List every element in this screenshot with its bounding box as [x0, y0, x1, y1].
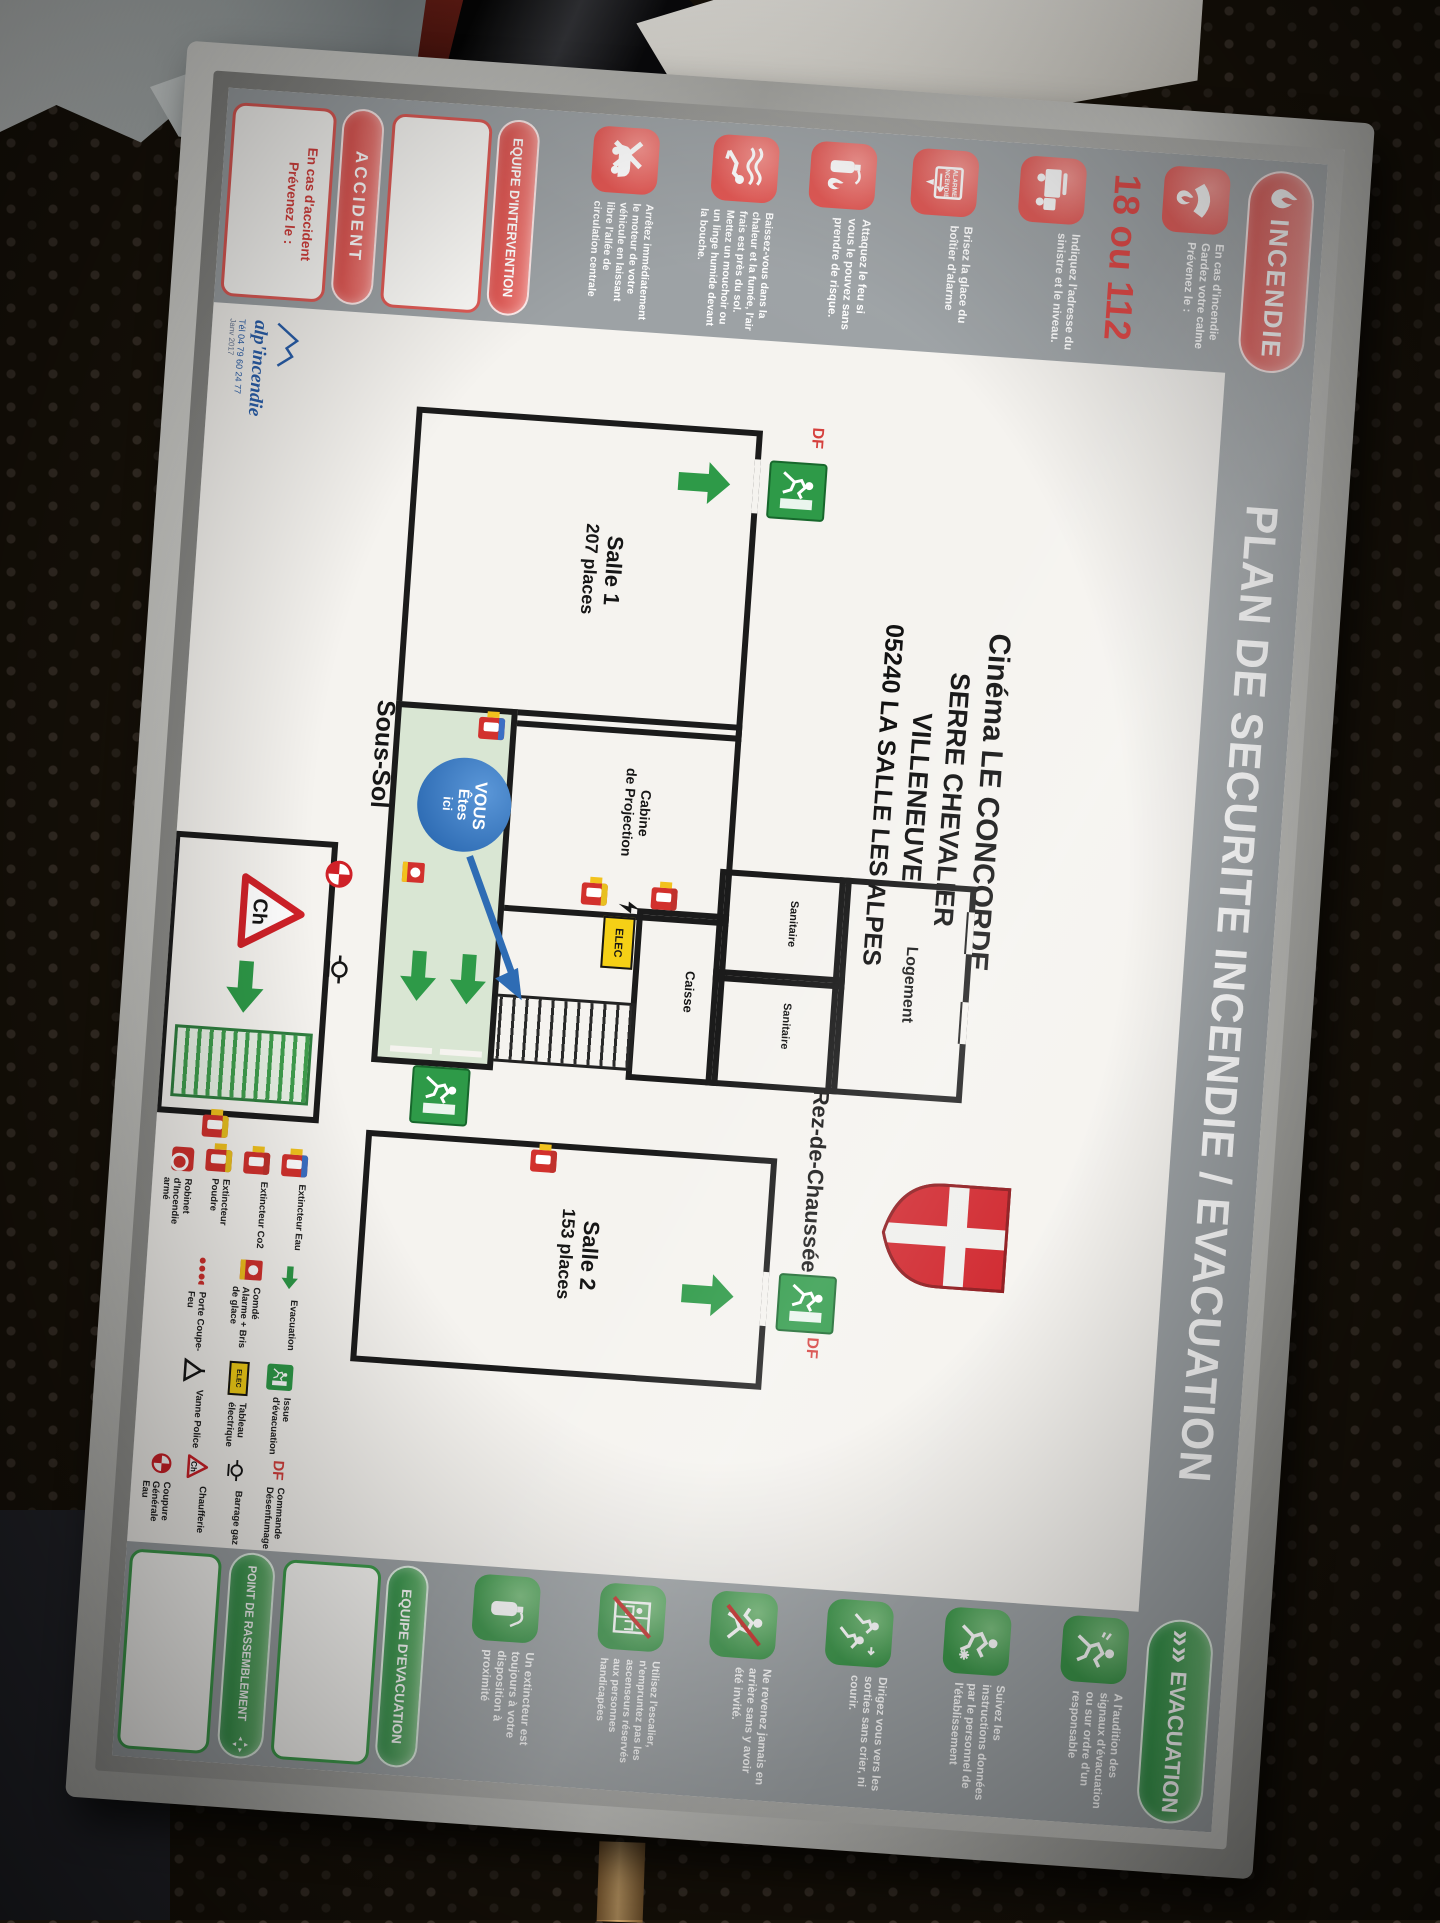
mountain-logo-icon: [272, 322, 303, 394]
savoie-shield: [877, 1176, 1014, 1297]
legend-item: Ch Chaufferie: [181, 1454, 209, 1542]
evacuation-arrow-up: [675, 458, 734, 508]
assembly-point-icon: [232, 1736, 249, 1753]
alarm-box-icon: [402, 862, 425, 883]
evacuation-instruction-row: Ne revenez jamais en arrière sans y avoi…: [699, 1590, 778, 1789]
evacuation-plan-poster: INCENDIE PLAN DE SECURITE INCENDIE / EVA…: [112, 88, 1328, 1833]
fire-instruction-row: Attaquez le feu si vous le pouvez sans p…: [799, 140, 878, 339]
gas-valve-icon: [324, 953, 350, 987]
runner-alarm-icon: [1060, 1615, 1130, 1685]
legend-label: Robinet d'Incendie armé: [156, 1177, 192, 1249]
legend-label: Commande Désenfumage: [260, 1486, 285, 1543]
accident-label: ACCIDENT: [344, 150, 372, 263]
rassemblement-banner: POINT DE RASSEMBLEMENT: [216, 1551, 276, 1760]
accident-banner: ACCIDENT: [330, 108, 386, 306]
equipe-intervention-banner: EQUIPE D'INTERVENTION: [485, 119, 541, 317]
fire-door-icon: [195, 1256, 209, 1285]
evacuation-instruction-row: Utilisez l'escalier, n'empruntez pas les…: [588, 1582, 667, 1781]
fire-instruction-text: Attaquez le feu si vous le pouvez sans p…: [799, 215, 873, 339]
chaufferie-triangle-icon: Ch: [235, 872, 308, 953]
evacuation-instruction-text: Suivez les instructions données par le p…: [933, 1681, 1007, 1805]
evacuation-instruction-row: Un extincteur est toujours à votre dispo…: [462, 1573, 541, 1772]
equipe-intervention-label: EQUIPE D'INTERVENTION: [500, 138, 526, 298]
exit-sign-icon: [266, 1363, 294, 1391]
lightning-icon: [618, 899, 641, 916]
legend-label: Comdé Alarme + Bris de glace: [225, 1286, 261, 1352]
evacuation-arrow-right: [220, 957, 270, 1016]
fire-hose-reel-icon: [171, 1146, 195, 1171]
car-crossed-icon: [590, 125, 660, 195]
fire-instruction-text: Baissez-vous dans la chaleur et la fumée…: [689, 208, 775, 333]
extinguisher-fire-icon: [808, 140, 878, 210]
fire-truck-icon: [1017, 155, 1087, 225]
water-cutoff-icon: [150, 1452, 173, 1475]
legend-item: Extincteur Eau: [275, 1154, 308, 1255]
gas-valve-icon: [225, 1457, 245, 1484]
legend-item: Comdé Alarme + Bris de glace: [225, 1259, 263, 1352]
evacuation-instruction-text: Dirigez vous vers les sorties sans crier…: [815, 1673, 889, 1797]
legend-item: Coupure Générale Eau: [136, 1451, 173, 1538]
fire-instruction-text: Brisez la glace du boîtier d'alarme: [901, 222, 975, 346]
electrical-panel-icon: ELEC: [227, 1361, 249, 1396]
extinguisher-powder-icon: [201, 1114, 228, 1138]
fire-instruction-row: ALARMEINCENDIE Brisez la glace du boîtie…: [901, 148, 980, 347]
electrical-panel-icon: ELEC: [600, 916, 636, 970]
intervention-names-box: [380, 113, 493, 314]
flame-icon: [1264, 184, 1300, 212]
alarm-box-icon: [240, 1259, 263, 1280]
evacuation-instruction-row: Suivez les instructions données par le p…: [933, 1606, 1012, 1805]
evacuation-instruction-text: Utilisez l'escalier, n'empruntez pas les…: [588, 1657, 662, 1781]
fire-instruction-row: Indiquez l'adresse du sinistre et le niv…: [1008, 155, 1087, 354]
evacuation-instruction-text: Ne revenez jamais en arrière sans y avoi…: [699, 1665, 773, 1789]
exit-sign-icon: [766, 460, 828, 522]
poster-frame: INCENDIE PLAN DE SECURITE INCENDIE / EVA…: [65, 41, 1375, 1880]
accident-box: En cas d'accident Prévenez le :: [220, 102, 337, 303]
svg-text:Ch: Ch: [189, 1461, 199, 1473]
green-arrow-icon: [279, 1262, 301, 1293]
water-cutoff-icon: [323, 858, 355, 890]
legend-item: DF Commande Désenfumage: [260, 1460, 287, 1544]
you-are-here-line: ici: [440, 796, 455, 811]
alp-incendie-logo: alp'incendie Tél 04 79 60 24 77 Janv 201…: [218, 318, 302, 473]
elec-symbol: ELEC: [234, 1369, 242, 1388]
smoke-control-icon: DF: [269, 1460, 287, 1481]
rassemblement-label: POINT DE RASSEMBLEMENT: [235, 1565, 260, 1721]
extinguisher-co2-icon: [243, 1151, 270, 1175]
equipe-evacuation-label: EQUIPE D'EVACUATION: [389, 1589, 415, 1745]
evacuation-label: EVACUATION: [1156, 1670, 1192, 1814]
evacuation-instruction-text: Un extincteur est toujours à votre dispo…: [462, 1648, 536, 1772]
you-are-here-arrow: [445, 845, 566, 1012]
exit-sign-icon: [409, 1065, 471, 1127]
phone-flame-icon: [1161, 165, 1231, 235]
df-label: DF: [801, 1337, 820, 1360]
evacuation-instruction-text: A l'audition des signaux d'évacuation ou…: [1051, 1689, 1125, 1813]
evacuation-instruction-row: Dirigez vous vers les sorties sans crier…: [815, 1598, 894, 1797]
extinguisher-powder-icon: [581, 882, 608, 906]
evacuation-instruction-row: A l'audition des signaux d'évacuation ou…: [1051, 1615, 1130, 1814]
extinguisher-powder-icon: [205, 1149, 232, 1173]
fire-instruction-text: Arrêtez immédiatement le moteur de votre…: [581, 200, 655, 324]
runners-exit-icon: [824, 1598, 894, 1668]
svg-text:ALARME: ALARME: [950, 169, 959, 198]
exit-sign-icon: [775, 1273, 837, 1335]
alarm-hand-icon: ALARMEINCENDIE: [910, 148, 980, 218]
incendie-label: INCENDIE: [1255, 218, 1296, 360]
accident-note: En cas d'accident Prévenez le :: [265, 108, 334, 299]
equipe-evacuation-banner: EQUIPE D'EVACUATION: [374, 1564, 430, 1768]
extinguisher-icon: [478, 717, 505, 741]
wooden-stick: [597, 1841, 646, 1923]
chaufferie-mark: Ch: [247, 898, 271, 926]
legend-label: Coupure Générale Eau: [136, 1480, 171, 1538]
extinguisher-co2-icon: [650, 887, 677, 911]
runner-follow-icon: [942, 1606, 1012, 1676]
evacuation-arrow-up: [678, 1270, 737, 1320]
df-label: DF: [807, 427, 826, 450]
crawl-smoke-icon: [710, 134, 780, 204]
basement-stairs: [170, 1024, 313, 1105]
fire-instruction-row: Arrêtez immédiatement le moteur de votre…: [581, 125, 660, 324]
evacuation-names-box: [270, 1559, 382, 1765]
police-valve-icon: [180, 1357, 206, 1383]
legend-label: Issue d'évacuation: [266, 1397, 291, 1462]
you-are-here-line: Êtes: [453, 788, 471, 821]
extinguisher-water-icon: [281, 1154, 308, 1178]
poster-glass: INCENDIE PLAN DE SECURITE INCENDIE / EVA…: [112, 88, 1328, 1833]
fire-instruction-text: En cas d'incendie Gardez votre calme Pré…: [1152, 240, 1226, 364]
emergency-numbers: 18 ou 112: [1094, 155, 1150, 359]
legend-label: Porte Coupe-Feu: [181, 1291, 206, 1356]
no-return-icon: [708, 1590, 778, 1660]
fire-instruction-row: Baissez-vous dans la chaleur et la fumée…: [689, 133, 780, 333]
no-elevator-icon: [597, 1582, 667, 1652]
elec-label: ELEC: [611, 928, 625, 958]
extinguisher-icon: [530, 1149, 557, 1173]
fire-instruction-text: Indiquez l'adresse du sinistre et le niv…: [1008, 230, 1082, 354]
boiler-icon: Ch: [186, 1454, 210, 1479]
rassemblement-box: [117, 1548, 223, 1754]
legend-item: Extincteur Co2: [238, 1151, 271, 1252]
chevrons-icon: »»: [1169, 1629, 1191, 1664]
evacuation-banner: »» EVACUATION: [1135, 1618, 1215, 1826]
fire-instruction-row: En cas d'incendie Gardez votre calme Pré…: [1152, 165, 1231, 364]
extinguisher-icon: [471, 1573, 541, 1643]
evacuation-arrow-right: [394, 948, 442, 1005]
incendie-banner: INCENDIE: [1236, 169, 1316, 375]
